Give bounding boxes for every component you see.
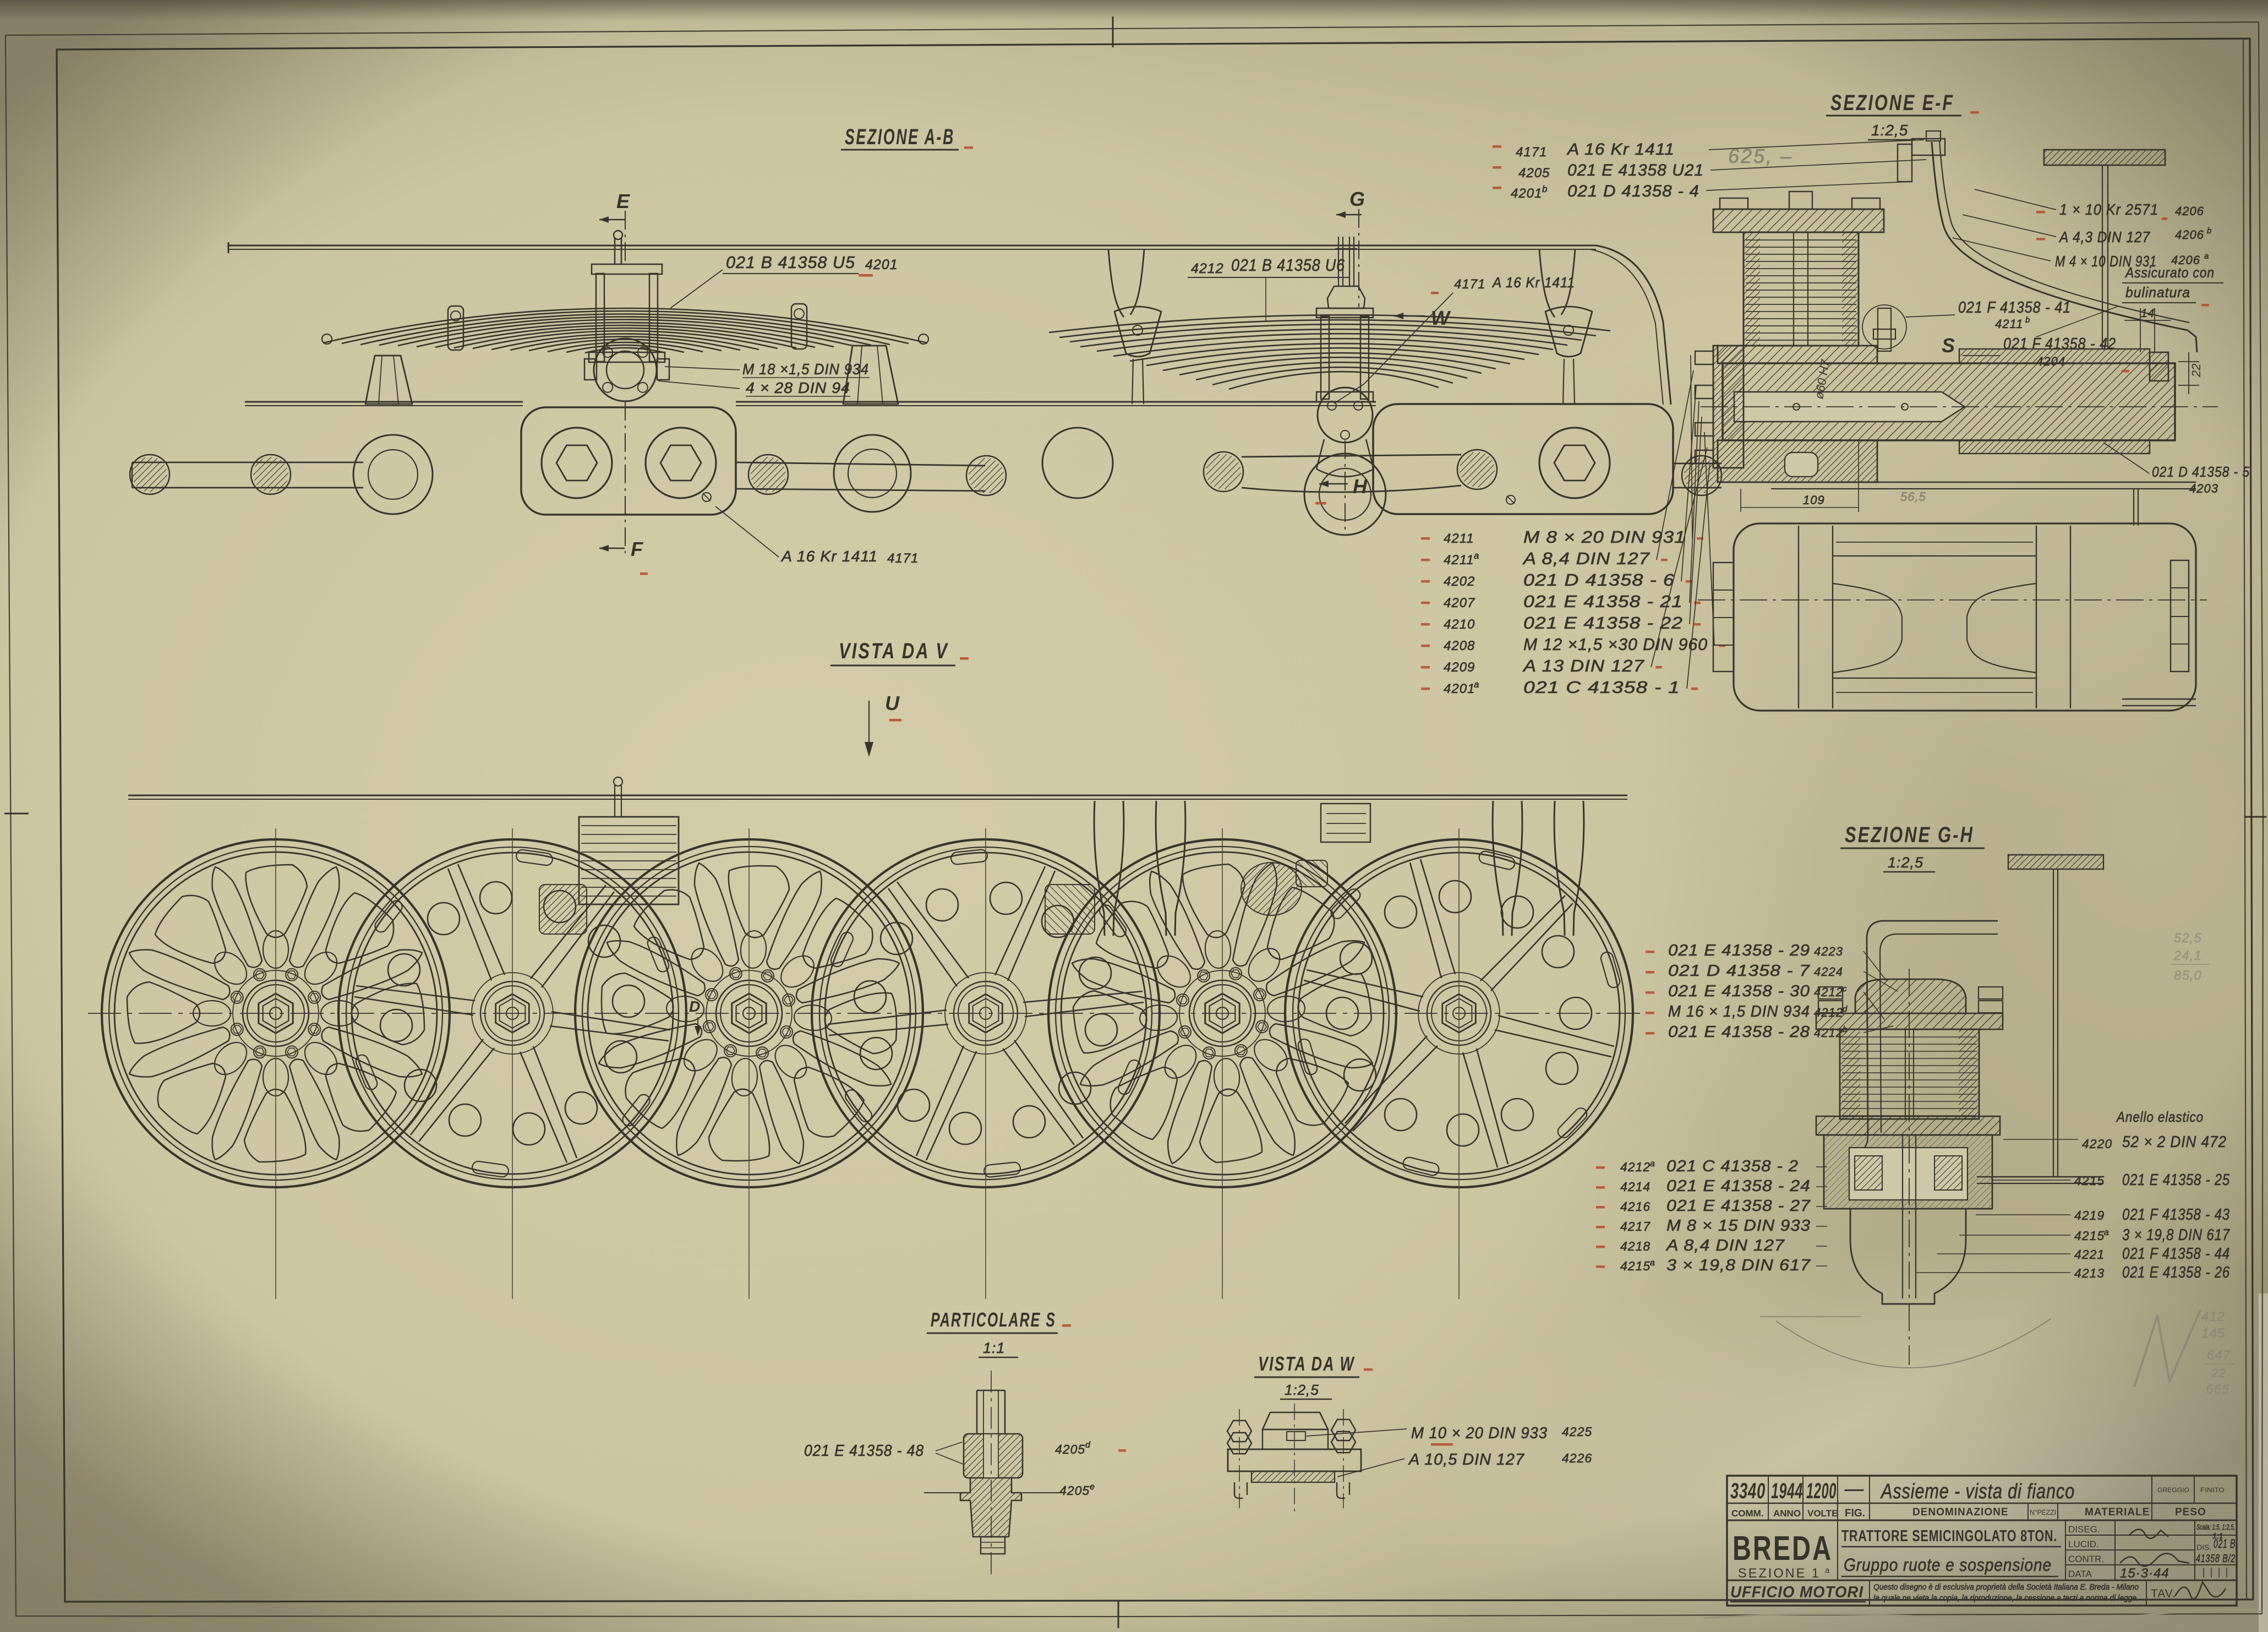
- svg-text:a: a: [1650, 1258, 1655, 1268]
- svg-text:14: 14: [2141, 307, 2155, 320]
- svg-text:4204: 4204: [2036, 354, 2065, 368]
- svg-text:SEZIONE E-F: SEZIONE E-F: [1830, 91, 1954, 115]
- svg-text:4201: 4201: [1444, 681, 1475, 696]
- svg-text:1200: 1200: [1806, 1479, 1837, 1503]
- svg-text:4206: 4206: [2175, 228, 2204, 242]
- svg-text:A 16 Kr 1411: A 16 Kr 1411: [1491, 274, 1575, 291]
- svg-text:a: a: [1474, 550, 1479, 561]
- svg-text:4207: 4207: [1444, 596, 1475, 610]
- svg-text:021 B: 021 B: [2214, 1537, 2236, 1551]
- svg-text:4214: 4214: [1620, 1180, 1651, 1194]
- svg-text:4205: 4205: [1055, 1442, 1085, 1456]
- svg-text:021 D 41358 - 5: 021 D 41358 - 5: [2152, 463, 2250, 480]
- svg-text:4208: 4208: [1444, 638, 1475, 653]
- svg-text:4216: 4216: [1620, 1199, 1651, 1214]
- svg-text:b: b: [1542, 184, 1548, 194]
- svg-text:021 C 41358 - 2: 021 C 41358 - 2: [1666, 1158, 1799, 1175]
- svg-text:4171: 4171: [887, 551, 919, 566]
- svg-text:A 8,4 DIN 127: A 8,4 DIN 127: [1522, 549, 1651, 568]
- svg-text:W: W: [1431, 307, 1451, 329]
- svg-text:VISTA DA V: VISTA DA V: [839, 639, 949, 663]
- svg-text:4205: 4205: [1059, 1483, 1090, 1498]
- svg-text:b: b: [2207, 226, 2212, 236]
- svg-text:Scala: 1:5, 1:2,5,: Scala: 1:5, 1:2,5,: [2196, 1522, 2235, 1531]
- svg-text:021 E 41358 - 28: 021 E 41358 - 28: [1668, 1023, 1810, 1041]
- svg-text:SEZIONE A-B: SEZIONE A-B: [845, 125, 955, 149]
- svg-text:GREGGIO: GREGGIO: [2157, 1486, 2189, 1494]
- svg-text:4212: 4212: [1191, 261, 1224, 276]
- svg-text:647: 647: [2207, 1348, 2231, 1363]
- svg-text:LUCID.: LUCID.: [2068, 1539, 2099, 1549]
- svg-text:4224: 4224: [1814, 965, 1843, 979]
- svg-text:4223: 4223: [1814, 945, 1843, 958]
- svg-text:SEZIONE G-H: SEZIONE G-H: [1845, 823, 1974, 847]
- svg-text:021 F 41358 - 41: 021 F 41358 - 41: [1958, 299, 2071, 316]
- svg-text:DISEG.: DISEG.: [2068, 1524, 2100, 1535]
- svg-text:4225: 4225: [1562, 1424, 1592, 1439]
- svg-text:S: S: [1942, 334, 1955, 357]
- svg-text:85,0: 85,0: [2174, 968, 2202, 983]
- svg-text:Gruppo ruote e sospensione: Gruppo ruote e sospensione: [1844, 1555, 2052, 1575]
- svg-text:4211: 4211: [1995, 317, 2023, 331]
- svg-text:ANNO: ANNO: [1773, 1508, 1801, 1519]
- svg-text:COMM.: COMM.: [1731, 1508, 1764, 1519]
- svg-text:—: —: [1844, 1478, 1864, 1499]
- svg-text:SEZIONE 1: SEZIONE 1: [1738, 1566, 1821, 1581]
- svg-text:021 F 41358 - 43: 021 F 41358 - 43: [2122, 1206, 2230, 1224]
- svg-text:M 8 × 15 DIN 933: M 8 × 15 DIN 933: [1666, 1217, 1811, 1235]
- svg-text:021 F 41358 - 42: 021 F 41358 - 42: [2003, 335, 2116, 353]
- svg-text:4211: 4211: [1444, 553, 1474, 567]
- svg-text:a: a: [1474, 679, 1479, 690]
- svg-text:VOLTE: VOLTE: [1807, 1508, 1838, 1519]
- svg-text:3 × 19,8 DIN 617: 3 × 19,8 DIN 617: [1666, 1257, 1811, 1274]
- svg-text:4226: 4226: [1562, 1451, 1592, 1465]
- svg-text:021 F 41358 - 44: 021 F 41358 - 44: [2122, 1245, 2230, 1263]
- svg-text:021 B 41358 U5: 021 B 41358 U5: [726, 253, 855, 272]
- svg-text:021 E 41358 - 30: 021 E 41358 - 30: [1668, 983, 1810, 1000]
- svg-text:A 10,5 DIN 127: A 10,5 DIN 127: [1408, 1451, 1525, 1469]
- svg-text:e: e: [1090, 1482, 1095, 1492]
- svg-text:BREDA: BREDA: [1733, 1530, 1833, 1568]
- svg-text:DIS.: DIS.: [2196, 1543, 2211, 1552]
- svg-text:021 E 41358 - 26: 021 E 41358 - 26: [2122, 1264, 2230, 1281]
- svg-text:4171: 4171: [1454, 277, 1485, 292]
- svg-text:A 16 Kr 1411: A 16 Kr 1411: [780, 548, 878, 565]
- svg-text:4220: 4220: [2082, 1137, 2112, 1151]
- svg-text:4221: 4221: [2074, 1247, 2105, 1262]
- svg-text:M 12 ×1,5 ×30 DIN 960: M 12 ×1,5 ×30 DIN 960: [1523, 635, 1708, 654]
- svg-text:DENOMINAZIONE: DENOMINAZIONE: [1912, 1507, 2009, 1518]
- svg-text:021 B 41358 U6: 021 B 41358 U6: [1231, 255, 1345, 275]
- svg-text:a: a: [2204, 252, 2209, 261]
- svg-text:b: b: [2025, 315, 2030, 325]
- svg-text:665: 665: [2206, 1382, 2229, 1397]
- svg-text:N°PEZZI: N°PEZZI: [2030, 1508, 2056, 1516]
- svg-text:Questo disegno è di esclusiva: Questo disegno è di esclusiva proprietà …: [1873, 1582, 2139, 1592]
- svg-text:145: 145: [2201, 1326, 2225, 1341]
- svg-text:021 E 41358 - 25: 021 E 41358 - 25: [2122, 1171, 2230, 1189]
- svg-text:021 E 41358 - 24: 021 E 41358 - 24: [1666, 1177, 1811, 1195]
- svg-text:4205: 4205: [1518, 166, 1550, 181]
- svg-text:4212: 4212: [1814, 1006, 1843, 1019]
- svg-text:021 E 41358 - 29: 021 E 41358 - 29: [1668, 942, 1810, 959]
- svg-text:021 C 41358 - 1: 021 C 41358 - 1: [1523, 678, 1680, 697]
- svg-text:56,5: 56,5: [1900, 490, 1926, 504]
- svg-text:4209: 4209: [1444, 660, 1475, 675]
- svg-text:4206: 4206: [2175, 204, 2204, 218]
- svg-text:M 16 × 1,5 DIN 934: M 16 × 1,5 DIN 934: [1668, 1003, 1810, 1020]
- svg-text:15·3·44: 15·3·44: [2120, 1566, 2169, 1581]
- svg-text:H: H: [1353, 475, 1368, 498]
- svg-text:4212: 4212: [1620, 1160, 1651, 1174]
- svg-text:1:1: 1:1: [983, 1340, 1005, 1356]
- svg-text:021 E 41358 - 48: 021 E 41358 - 48: [804, 1442, 924, 1460]
- svg-text:4219: 4219: [2074, 1208, 2105, 1222]
- svg-text:412: 412: [2201, 1309, 2225, 1324]
- svg-text:4201: 4201: [1511, 186, 1542, 201]
- svg-text:DATA: DATA: [2068, 1569, 2092, 1579]
- svg-text:E: E: [616, 190, 630, 212]
- svg-text:4201: 4201: [865, 257, 898, 272]
- svg-text:FIG.: FIG.: [1845, 1508, 1865, 1519]
- svg-text:FINITO: FINITO: [2200, 1486, 2225, 1494]
- svg-text:d: d: [1085, 1440, 1091, 1450]
- svg-text:TAV.: TAV.: [2151, 1587, 2176, 1600]
- svg-text:22: 22: [2211, 1366, 2226, 1380]
- svg-text:VISTA DA W: VISTA DA W: [1258, 1352, 1355, 1375]
- svg-text:a: a: [1825, 1566, 1830, 1575]
- svg-text:24,1: 24,1: [2173, 948, 2202, 963]
- svg-text:22: 22: [2189, 364, 2203, 378]
- svg-text:M 18 ×1,5 DIN 934: M 18 ×1,5 DIN 934: [742, 361, 869, 378]
- svg-text:G: G: [1349, 188, 1365, 210]
- svg-text:3340: 3340: [1730, 1479, 1766, 1503]
- svg-text:MATERIALE: MATERIALE: [2085, 1507, 2150, 1518]
- svg-text:CONTR.: CONTR.: [2068, 1554, 2104, 1564]
- svg-text:4212: 4212: [1814, 1026, 1843, 1040]
- svg-text:D: D: [689, 998, 701, 1015]
- svg-text:41358 B/2: 41358 B/2: [2196, 1553, 2236, 1565]
- svg-text:U: U: [885, 692, 900, 714]
- svg-text:021 D 41358 - 6: 021 D 41358 - 6: [1523, 570, 1675, 590]
- svg-text:A 16 Kr 1411: A 16 Kr 1411: [1566, 140, 1675, 159]
- svg-text:021 E 41358 - 22: 021 E 41358 - 22: [1523, 613, 1683, 632]
- svg-text:4215: 4215: [1620, 1259, 1651, 1273]
- svg-text:4210: 4210: [1444, 617, 1475, 632]
- svg-text:52 × 2 DIN 472: 52 × 2 DIN 472: [2122, 1133, 2227, 1151]
- svg-text:021 D 41358 - 4: 021 D 41358 - 4: [1567, 182, 1699, 200]
- svg-text:3 × 19,8 DIN 617: 3 × 19,8 DIN 617: [2122, 1226, 2231, 1244]
- svg-text:52,5: 52,5: [2174, 931, 2202, 946]
- svg-text:M 10 × 20 DIN 933: M 10 × 20 DIN 933: [1411, 1424, 1548, 1442]
- svg-text:Anello elastico: Anello elastico: [2116, 1109, 2204, 1125]
- svg-text:4212: 4212: [1814, 985, 1843, 999]
- svg-text:a: a: [2104, 1228, 2109, 1237]
- svg-text:b: b: [1843, 1025, 1848, 1034]
- svg-text:c: c: [1843, 984, 1848, 994]
- svg-text:4171: 4171: [1516, 145, 1547, 160]
- svg-text:UFFICIO MOTORI: UFFICIO MOTORI: [1730, 1584, 1863, 1601]
- svg-text:Assieme - vista di fianco: Assieme - vista di fianco: [1880, 1480, 2075, 1503]
- svg-text:4215: 4215: [2074, 1173, 2105, 1188]
- svg-text:TRATTORE SEMICINGOLATO 8TON.: TRATTORE SEMICINGOLATO 8TON.: [1841, 1527, 2057, 1545]
- svg-text:PARTICOLARE S: PARTICOLARE S: [931, 1308, 1056, 1331]
- svg-text:A 13 DIN 127: A 13 DIN 127: [1522, 656, 1645, 675]
- svg-text:4211: 4211: [1444, 531, 1474, 546]
- svg-text:1944: 1944: [1771, 1479, 1803, 1503]
- svg-text:4 × 28 DIN 94: 4 × 28 DIN 94: [746, 379, 850, 396]
- svg-text:021 D 41358 - 7: 021 D 41358 - 7: [1668, 962, 1811, 980]
- svg-text:4202: 4202: [1444, 574, 1475, 589]
- svg-text:1 × 10 Kr 2571: 1 × 10 Kr 2571: [2059, 201, 2158, 218]
- svg-text:F: F: [631, 538, 643, 560]
- svg-text:4218: 4218: [1620, 1239, 1651, 1253]
- svg-text:4213: 4213: [2074, 1266, 2105, 1280]
- svg-text:109: 109: [1803, 493, 1825, 507]
- svg-text:bulinatura: bulinatura: [2125, 284, 2190, 301]
- svg-text:1:2,5: 1:2,5: [1285, 1382, 1319, 1398]
- svg-text:la quale ne vieta la copia, la: la quale ne vieta la copia, la riproduzi…: [1873, 1593, 2139, 1603]
- svg-text:4215: 4215: [2074, 1229, 2105, 1243]
- svg-text:d: d: [1843, 1005, 1848, 1014]
- svg-text:Assicurato con: Assicurato con: [2124, 264, 2215, 281]
- svg-text:A 4,3 DIN 127: A 4,3 DIN 127: [2058, 228, 2150, 245]
- svg-text:1:2,5: 1:2,5: [1888, 854, 1923, 871]
- svg-text:021 E 41358 - 27: 021 E 41358 - 27: [1666, 1197, 1811, 1215]
- svg-text:1:2,5: 1:2,5: [1871, 122, 1908, 139]
- svg-text:021 E 41358 - 21: 021 E 41358 - 21: [1523, 592, 1683, 611]
- svg-text:A 8,4 DIN 127: A 8,4 DIN 127: [1665, 1237, 1785, 1254]
- svg-text:PESO: PESO: [2175, 1507, 2206, 1518]
- svg-text:a: a: [1650, 1159, 1655, 1169]
- svg-text:4217: 4217: [1620, 1219, 1651, 1233]
- svg-text:625, –: 625, –: [1728, 145, 1793, 167]
- svg-text:021 E 41358 U21: 021 E 41358 U21: [1567, 161, 1704, 179]
